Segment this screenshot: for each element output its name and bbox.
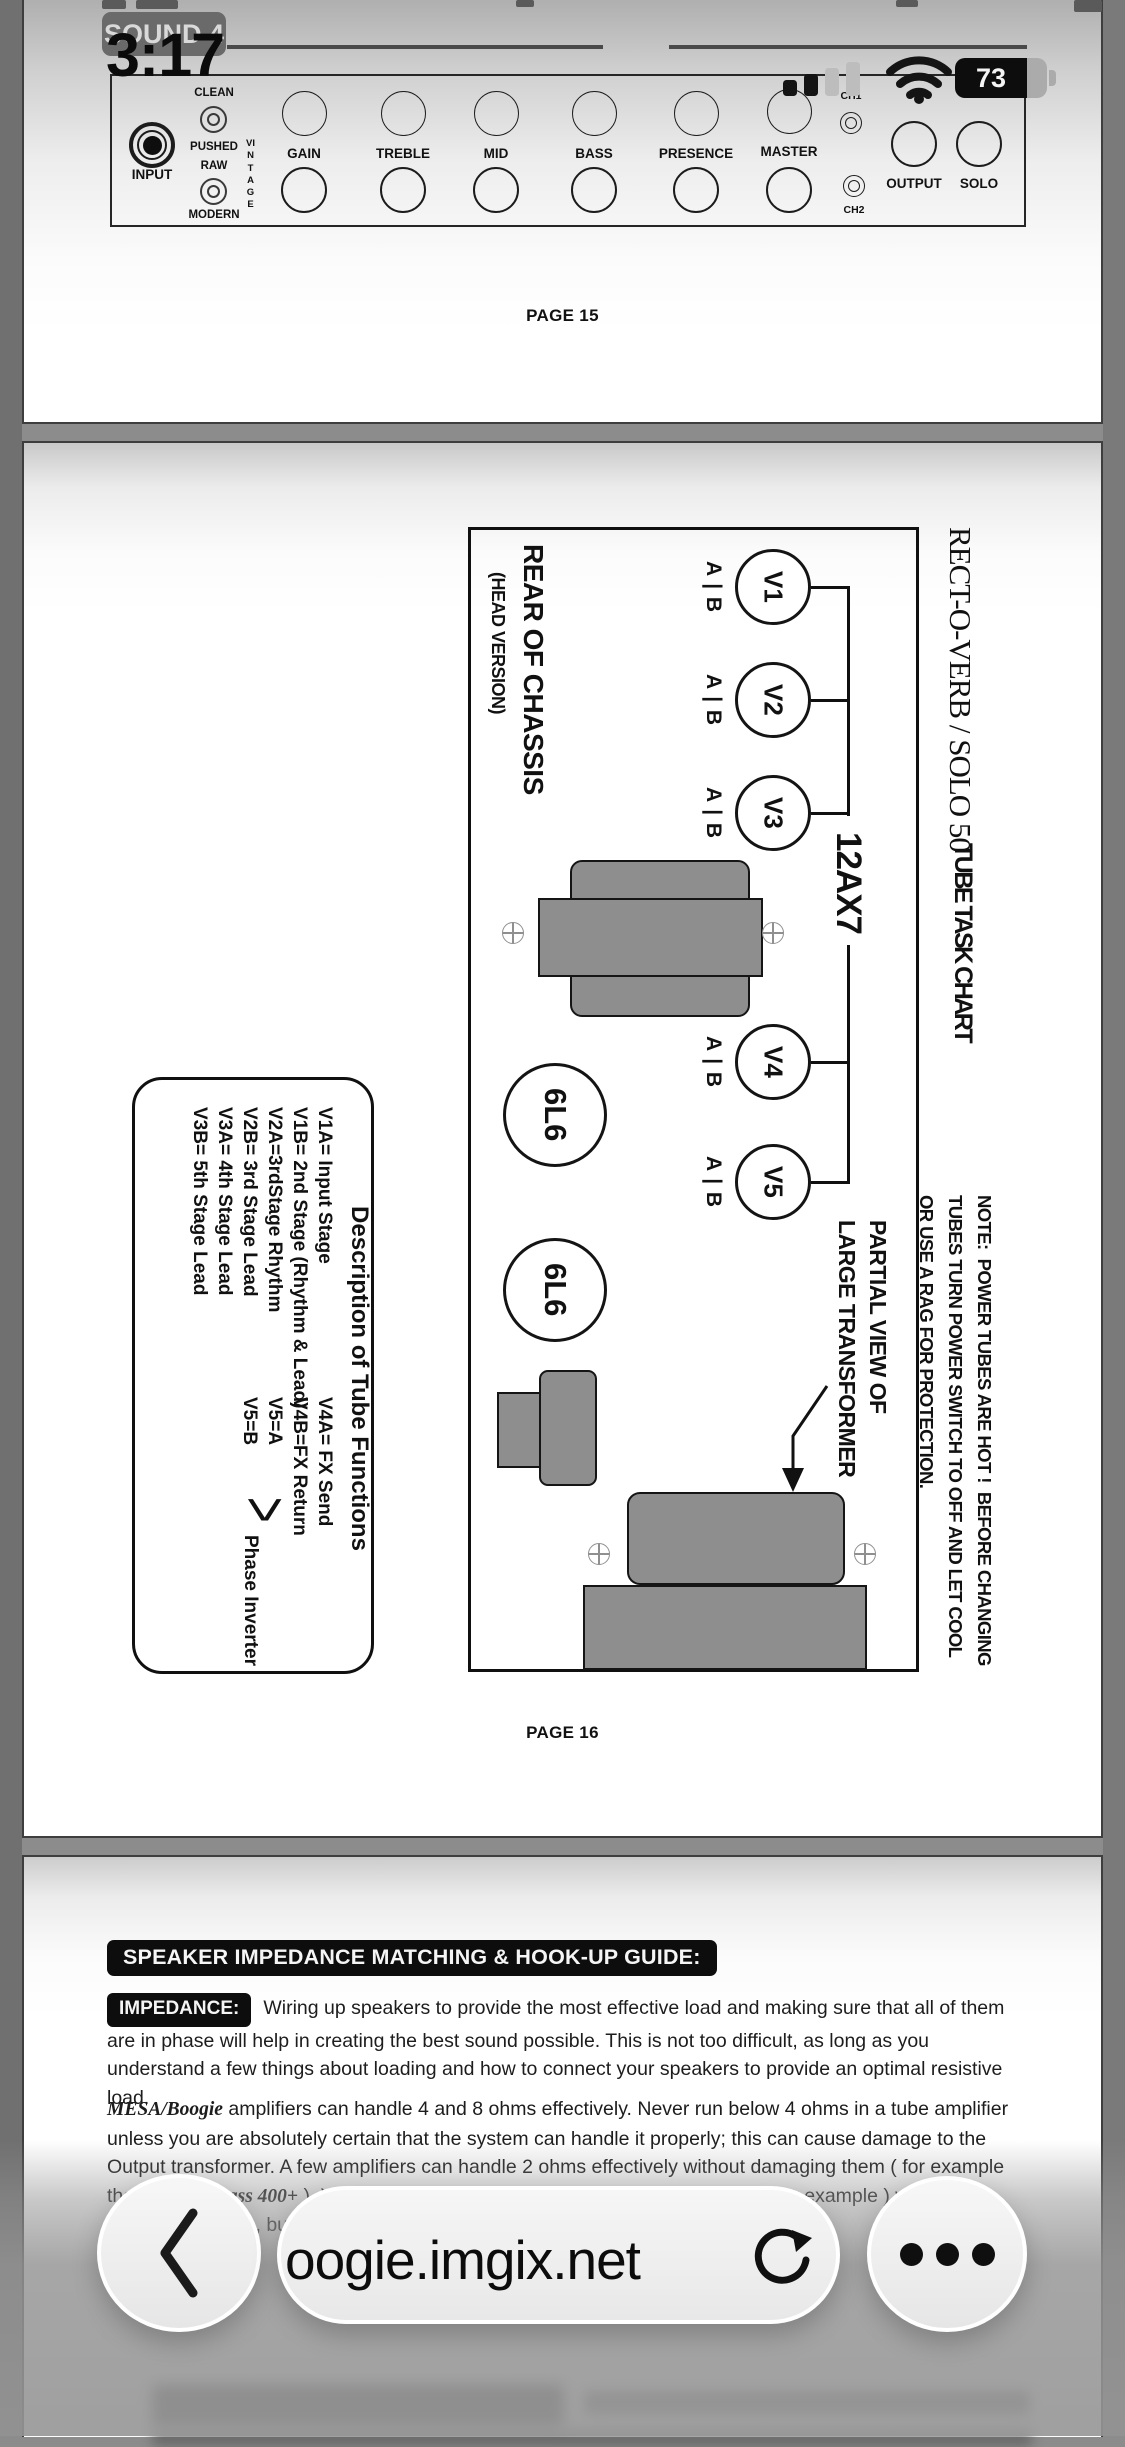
ellipsis-dot <box>900 2243 923 2266</box>
phase-inverter-label: Phase Inverter <box>239 1535 261 1666</box>
input-jack-ring <box>137 130 167 160</box>
rear-of-chassis-label: REAR OF CHASSIS <box>517 544 549 795</box>
bracket-stub <box>811 1181 848 1184</box>
tube-6l6-label: 6L6 <box>537 1263 573 1316</box>
voice-toggle-icon <box>200 178 227 205</box>
tube-v3: V3 <box>735 775 811 851</box>
raw-label: RAW <box>184 160 244 172</box>
partial-view-line1: PARTIAL VIEW OF <box>862 1220 893 1550</box>
large-transformer-base <box>583 1585 867 1670</box>
speaker-guide-heading: SPEAKER IMPEDANCE MATCHING & HOOK-UP GUI… <box>107 1940 717 1976</box>
pointer-arrow-icon <box>769 1376 839 1494</box>
tube-function-item: V3A= 4th Stage Lead <box>213 1107 235 1295</box>
tube-function-item: V2B= 3rd Stage Lead <box>238 1107 260 1297</box>
ab-label: A | B <box>701 1144 725 1220</box>
bracket-stub <box>811 699 848 702</box>
tube-v3-label: V3 <box>758 797 789 829</box>
knob-treble-bottom <box>380 167 426 213</box>
mode-toggle-inner <box>207 113 220 126</box>
ellipsis-dot <box>972 2243 995 2266</box>
chart-subtitle: TUBE TASK CHART <box>948 843 977 1013</box>
battery-cap <box>1049 70 1056 86</box>
knob-solo <box>956 121 1002 167</box>
url-text[interactable]: oogie.imgix.net <box>285 2228 763 2292</box>
knob-mid-bottom <box>473 167 519 213</box>
signal-bar <box>804 74 818 96</box>
tube-v4-label: V4 <box>758 1046 789 1078</box>
chassis-screw-icon <box>502 922 524 944</box>
knob-output <box>891 121 937 167</box>
bracket-stub <box>811 812 848 815</box>
choke-transformer-tab <box>497 1392 543 1468</box>
knob-gain-bottom <box>281 167 327 213</box>
tube-6l6-2: 6L6 <box>503 1238 607 1342</box>
cellular-signal-icon <box>783 60 875 96</box>
ch1-jack-inner <box>845 117 857 129</box>
partial-view-label: PARTIAL VIEW OFLARGE TRANSFORMER <box>831 1220 893 1550</box>
back-button[interactable] <box>97 2174 261 2332</box>
mode-toggle-icon <box>200 106 227 133</box>
battery-level-text: 73 <box>955 58 1027 98</box>
solo-label: SOLO <box>919 176 1039 191</box>
tube-v5-label: V5 <box>758 1166 789 1198</box>
pdf-viewer[interactable]: SOUND 4 INPUT CLEAN PUSHED RAW MODERN V <box>0 0 1125 2436</box>
chassis-diagram: REAR OF CHASSIS (HEAD VERSION) A | B V1 … <box>468 527 919 1672</box>
tube-function-item: V5=B <box>238 1397 260 1445</box>
tube-v1-label: V1 <box>758 571 789 603</box>
partial-view-line2: LARGE TRANSFORMER <box>831 1220 862 1550</box>
chevron-left-icon <box>154 2206 204 2300</box>
bracket-line <box>847 586 850 816</box>
knob-bass-top <box>572 91 617 136</box>
tube-v2: V2 <box>735 662 811 738</box>
input-jack-icon <box>129 122 175 168</box>
url-bar[interactable]: oogie.imgix.net <box>277 2186 840 2324</box>
voice-toggle-inner <box>207 185 220 198</box>
impedance-badge: IMPEDANCE: <box>107 1993 251 2027</box>
tube-functions-content: Description of Tube Functions V1A= Input… <box>140 1091 373 1666</box>
head-version-label: (HEAD VERSION) <box>487 572 508 714</box>
knob-presence-top <box>674 91 719 136</box>
ellipsis-dot <box>936 2243 959 2266</box>
tube-functions-title: Description of Tube Functions <box>345 1091 373 1666</box>
tube-functions-box: Description of Tube Functions V1A= Input… <box>132 1077 374 1674</box>
knob-treble-top <box>381 91 426 136</box>
cut-text-artifact <box>1074 0 1102 12</box>
modern-label: MODERN <box>177 209 251 221</box>
ab-label: A | B <box>701 1024 725 1100</box>
chassis-screw-icon <box>588 1543 610 1565</box>
chart-title: RECT-O-VERB / SOLO 50 <box>942 527 978 847</box>
knob-gain-top <box>282 91 327 136</box>
ch2-label: CH2 <box>824 204 884 216</box>
cut-text-artifact <box>102 0 126 9</box>
bracket-line <box>847 945 850 1184</box>
page-16-number: PAGE 16 <box>24 1723 1101 1743</box>
wifi-icon <box>885 54 953 104</box>
ab-label: A | B <box>701 775 725 851</box>
left-gutter <box>0 0 22 2436</box>
tube-function-item: V1A= Input Stage <box>313 1107 335 1264</box>
output-transformer-lamination <box>538 898 763 977</box>
input-jack-core <box>143 136 162 155</box>
right-gutter <box>1103 0 1125 2436</box>
cut-text-artifact <box>896 0 918 7</box>
power-tubes-note: NOTE: POWER TUBES ARE HOT ! BEFORE CHANG… <box>912 1195 999 1673</box>
bracket-stub <box>811 586 848 589</box>
knob-presence-bottom <box>673 167 719 213</box>
tube-6l6-label: 6L6 <box>537 1088 573 1141</box>
ch1-jack-icon <box>840 112 862 134</box>
knob-master-bottom <box>766 167 812 213</box>
tube-function-item: V1B= 2nd Stage (Rhythm & Lead) <box>288 1107 310 1408</box>
rule-line <box>227 45 603 49</box>
signal-bar <box>783 80 797 96</box>
master-label: MASTER <box>729 144 849 159</box>
tube-6l6-1: 6L6 <box>503 1063 607 1167</box>
preamp-tube-type-label: 12AX7 <box>828 822 868 944</box>
chassis-screw-icon <box>762 922 784 944</box>
knob-mid-top <box>474 91 519 136</box>
large-transformer-top <box>627 1492 845 1585</box>
pushed-label: PUSHED <box>179 141 249 153</box>
knob-bass-bottom <box>571 167 617 213</box>
tube-function-item: V5=A <box>263 1397 285 1445</box>
tube-function-item: V4A= FX Send <box>313 1397 335 1526</box>
signal-bar <box>846 62 860 96</box>
reload-icon[interactable] <box>748 2228 812 2292</box>
cut-text-artifact <box>136 0 178 9</box>
note-line3: OR USE A RAG FOR PROTECTION. <box>912 1195 941 1673</box>
note-line1: NOTE: POWER TUBES ARE HOT ! BEFORE CHANG… <box>970 1195 999 1673</box>
status-time: 3:17 <box>106 20 224 90</box>
ab-label: A | B <box>701 662 725 738</box>
brand-text: MESA/Boogie <box>107 2099 223 2120</box>
brace-glyph: > <box>227 1497 302 1523</box>
tube-v2-label: V2 <box>758 684 789 716</box>
cut-text-artifact <box>516 0 534 7</box>
choke-transformer-body <box>539 1370 597 1486</box>
tube-function-item: V2A=3rdStage Rhythm <box>263 1107 285 1312</box>
pdf-page-16: RECT-O-VERB / SOLO 50 TUBE TASK CHART RE… <box>22 441 1103 1838</box>
more-options-button[interactable] <box>867 2176 1027 2332</box>
bracket-stub <box>811 1061 848 1064</box>
page-15-number: PAGE 15 <box>24 306 1101 326</box>
battery-remainder <box>1027 58 1047 98</box>
ab-label: A | B <box>701 549 725 625</box>
tube-v5: V5 <box>735 1144 811 1220</box>
signal-bar <box>825 68 839 96</box>
tube-function-item: V3B= 5th Stage Lead <box>188 1107 210 1295</box>
tube-v4: V4 <box>735 1024 811 1100</box>
note-line2: TUBES TURN POWER SWITCH TO OFF AND LET C… <box>941 1195 970 1673</box>
battery-icon: 73 <box>955 58 1056 98</box>
rule-line <box>669 45 1027 49</box>
tube-v1: V1 <box>735 549 811 625</box>
